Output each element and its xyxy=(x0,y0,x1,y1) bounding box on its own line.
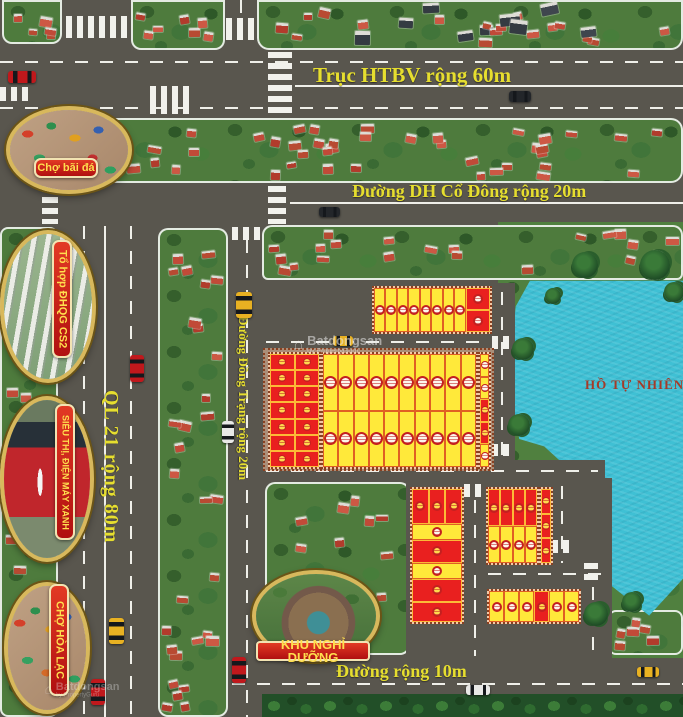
plot-strip xyxy=(412,563,462,579)
car-icon xyxy=(130,355,144,382)
plot-strip xyxy=(564,591,579,622)
plot-strip xyxy=(504,591,519,622)
palm-tree-icon xyxy=(584,602,608,626)
plot-cell xyxy=(480,422,489,445)
plot-stamp-icon xyxy=(386,305,396,315)
plot-stamp-icon xyxy=(303,390,311,398)
plot-cell xyxy=(429,489,446,524)
plot-stamp-icon xyxy=(278,423,286,431)
house-icon: ⌂ xyxy=(294,336,303,353)
plot-stamp-icon xyxy=(567,602,577,612)
market-photo xyxy=(10,110,128,190)
house-icon xyxy=(289,140,302,151)
plot-strip xyxy=(295,354,320,467)
crosswalk xyxy=(584,563,598,585)
watermark-sub: by PropertyGuru xyxy=(56,692,120,698)
house-icon xyxy=(269,245,280,253)
car-icon xyxy=(222,421,234,443)
house-icon xyxy=(357,20,368,30)
plot-stamp-icon xyxy=(339,432,352,445)
plot-cell xyxy=(412,579,462,602)
plot-stamp-icon xyxy=(455,305,465,315)
house-icon xyxy=(502,163,512,170)
house-icon xyxy=(210,572,220,581)
crosswalk xyxy=(492,444,512,456)
plot-stamp-icon xyxy=(278,390,286,398)
plot-cell xyxy=(408,288,419,332)
plot-cell xyxy=(270,386,295,402)
plot-strip xyxy=(534,591,549,622)
house-icon xyxy=(602,230,616,239)
plot-stamp-icon xyxy=(447,376,460,389)
house-icon xyxy=(323,163,334,173)
palm-tree-icon xyxy=(622,592,642,612)
house-icon xyxy=(355,31,371,45)
plot-stamp-icon xyxy=(449,501,459,511)
house-icon: ⌂ xyxy=(45,682,53,696)
plot-stamp-icon xyxy=(370,432,383,445)
house-icon xyxy=(39,16,53,28)
house-icon xyxy=(304,13,312,20)
plot-stamp-icon xyxy=(552,602,562,612)
house-icon xyxy=(153,26,164,32)
car-icon xyxy=(8,71,36,83)
plot-cell xyxy=(480,399,489,422)
watermark: ⌂ Batdongsan by PropertyGuru xyxy=(45,680,120,699)
plot-cell xyxy=(513,489,525,526)
lane-marking xyxy=(0,107,683,109)
plot-strip xyxy=(541,489,551,514)
plot-cell xyxy=(399,411,414,468)
plot-cell xyxy=(270,354,295,370)
plot-stamp-icon xyxy=(481,406,489,414)
plot-cell xyxy=(270,402,295,418)
plot-strip xyxy=(454,288,465,332)
house-icon xyxy=(174,442,184,452)
plot-stamp-icon xyxy=(339,376,352,389)
plot-strip xyxy=(374,288,385,332)
house-icon xyxy=(522,264,534,273)
car-icon xyxy=(232,657,246,683)
house-icon xyxy=(151,158,160,168)
plot-cell xyxy=(454,288,465,332)
plot-cell xyxy=(295,451,320,467)
plot-cell xyxy=(338,411,353,468)
plot-block xyxy=(372,286,492,334)
house-icon xyxy=(627,240,639,250)
house-icon xyxy=(144,30,154,39)
plot-cell xyxy=(500,489,512,526)
plot-strip xyxy=(466,288,490,332)
house-icon xyxy=(270,137,281,148)
plot-stamp-icon xyxy=(473,316,483,326)
plot-cell xyxy=(270,435,295,451)
house-icon xyxy=(201,250,214,258)
house-icon xyxy=(169,469,178,478)
house-icon xyxy=(276,254,287,265)
house-icon xyxy=(479,38,492,48)
house-icon xyxy=(383,251,394,261)
plot-stamp-icon xyxy=(462,376,475,389)
crosswalk xyxy=(492,336,512,349)
house-icon xyxy=(615,229,626,239)
plot-stamp-icon xyxy=(431,376,444,389)
plot-strip xyxy=(397,288,408,332)
plot-stamp-icon xyxy=(492,602,502,612)
lane-marking xyxy=(474,500,476,656)
house-icon xyxy=(172,254,182,264)
plot-stamp-icon xyxy=(444,305,454,315)
house-icon xyxy=(614,133,627,141)
crosswalk xyxy=(150,86,194,114)
plot-stamp-icon xyxy=(355,432,368,445)
plot-stamp-icon xyxy=(278,358,286,366)
house-icon xyxy=(433,132,444,142)
house-icon xyxy=(201,412,215,421)
plot-stamp-icon xyxy=(462,432,475,445)
plot-cell xyxy=(295,370,320,386)
plot-stamp-icon xyxy=(416,376,429,389)
campus-photo xyxy=(4,234,92,379)
house-icon xyxy=(555,21,566,30)
house-icon xyxy=(317,256,329,263)
plot-cell xyxy=(412,540,462,563)
house-icon xyxy=(540,162,552,171)
plot-cell xyxy=(541,489,551,514)
plot-stamp-icon xyxy=(385,432,398,445)
plot-cell xyxy=(295,402,320,418)
plot-strip xyxy=(385,288,396,332)
plot-stamp-icon xyxy=(421,305,431,315)
plot-stamp-icon xyxy=(432,607,442,617)
plot-strip xyxy=(412,540,462,563)
plot-stamp-icon xyxy=(542,547,550,555)
house-icon xyxy=(315,244,325,253)
plot-strip xyxy=(399,354,414,467)
palm-tree-icon xyxy=(640,250,670,280)
palm-tree-icon xyxy=(512,338,534,360)
plot-cell xyxy=(323,411,338,468)
plot-stamp-icon xyxy=(398,305,408,315)
house-icon xyxy=(490,167,503,174)
house-icon xyxy=(435,15,444,24)
plot-block xyxy=(410,487,464,624)
landmark-badge-sieu-thi: SIÊU THỊ, ĐIỆN MÁY XANH xyxy=(55,404,75,540)
plot-stamp-icon xyxy=(537,602,547,612)
house-icon xyxy=(360,132,371,141)
lane-marking xyxy=(501,292,503,458)
plot-cell xyxy=(270,451,295,467)
landmark-photo-dhqg xyxy=(0,230,96,383)
landmark-badge-dhqg: Tổ hợp ĐHQG CS2 xyxy=(52,240,72,358)
plot-strip xyxy=(338,354,353,467)
house-icon xyxy=(423,3,440,14)
house-icon xyxy=(172,165,181,175)
house-icon xyxy=(324,229,333,238)
plot-cell xyxy=(461,411,476,468)
plot-stamp-icon xyxy=(415,501,425,511)
house-icon xyxy=(275,22,287,33)
house-icon xyxy=(405,133,417,144)
road-label-dong-trang: Đường Đồng Trạng rộng 20m xyxy=(235,316,251,480)
lane-marking xyxy=(130,226,132,717)
plot-cell xyxy=(338,354,353,411)
crosswalk xyxy=(232,227,262,240)
landmark-badge-khu-nghi-duong: KHU NGHỈ DƯỠNG xyxy=(256,641,370,661)
house-icon xyxy=(177,596,188,603)
crosswalk xyxy=(268,186,286,224)
house-icon xyxy=(189,317,202,329)
house-icon xyxy=(330,239,340,247)
plot-strip xyxy=(415,354,430,467)
plot-block xyxy=(487,589,581,624)
house-icon xyxy=(298,149,308,157)
plot-cell xyxy=(445,354,460,411)
house-icon xyxy=(198,17,207,27)
house-icon xyxy=(376,593,385,601)
plot-cell xyxy=(384,411,399,468)
plot-stamp-icon xyxy=(501,503,511,513)
plot-strip xyxy=(412,489,462,524)
plot-stamp-icon xyxy=(489,503,499,513)
house-icon xyxy=(189,28,200,37)
plot-cell xyxy=(466,310,490,332)
house-icon xyxy=(206,636,219,646)
plot-stamp-icon xyxy=(278,374,286,382)
plot-stamp-icon xyxy=(542,497,550,505)
plot-stamp-icon xyxy=(278,406,286,414)
house-icon xyxy=(651,128,662,136)
plot-cell xyxy=(443,288,454,332)
car-icon xyxy=(236,292,252,318)
plot-cell xyxy=(504,591,519,622)
plot-cell xyxy=(374,288,385,332)
plot-cell xyxy=(270,370,295,386)
plot-stamp-icon xyxy=(507,602,517,612)
plot-stamp-icon xyxy=(385,376,398,389)
plot-cell xyxy=(466,288,490,310)
plot-stamp-icon xyxy=(481,429,489,437)
plot-stamp-icon xyxy=(324,432,337,445)
plot-stamp-icon xyxy=(401,432,414,445)
plot-stamp-icon xyxy=(481,452,489,460)
plot-strip xyxy=(270,354,295,467)
plot-cell xyxy=(369,411,384,468)
palm-tree-icon xyxy=(664,282,683,302)
plot-cell xyxy=(431,288,442,332)
plot-cell xyxy=(513,526,525,563)
watermark-brand: Batdongsan xyxy=(307,333,382,348)
plot-stamp-icon xyxy=(324,376,337,389)
plot-strip xyxy=(384,354,399,467)
palm-tree-icon xyxy=(508,414,530,436)
road-label-ql21: QL 21 rộng 80m xyxy=(99,390,122,543)
plot-stamp-icon xyxy=(514,540,524,550)
plot-cell xyxy=(270,419,295,435)
watermark: ⌂ Batdongsan by PropertyGuru xyxy=(294,333,382,355)
plot-stamp-icon xyxy=(542,522,550,530)
road-label-duong-10m: Đường rộng 10m xyxy=(336,661,467,682)
house-icon xyxy=(380,551,392,559)
plot-strip xyxy=(354,354,369,467)
crosswalk xyxy=(268,52,292,116)
plot-cell xyxy=(415,411,430,468)
plot-cell xyxy=(525,489,537,526)
house-icon xyxy=(338,503,350,514)
house-icon xyxy=(179,14,189,25)
plot-cell xyxy=(480,444,489,467)
plot-strip xyxy=(323,354,338,467)
lane-marking xyxy=(232,683,683,685)
car-icon xyxy=(637,667,659,677)
plot-stamp-icon xyxy=(473,294,483,304)
house-icon xyxy=(199,497,211,503)
plot-strip xyxy=(488,526,537,563)
plot-stamp-icon xyxy=(370,376,383,389)
watermark-sub: by PropertyGuru xyxy=(307,348,382,355)
house-icon xyxy=(509,19,528,35)
car-icon xyxy=(509,91,531,102)
car-icon xyxy=(109,618,124,644)
house-icon xyxy=(646,636,658,645)
plot-cell xyxy=(541,514,551,539)
plot-strip xyxy=(488,489,537,526)
house-icon xyxy=(376,515,387,522)
aerial-photo xyxy=(95,118,683,183)
plot-cell xyxy=(354,354,369,411)
tree-row xyxy=(262,694,683,717)
plot-cell xyxy=(412,524,462,540)
house-icon xyxy=(167,644,178,654)
plot-cell xyxy=(541,538,551,563)
house-icon xyxy=(203,31,213,41)
plot-stamp-icon xyxy=(278,439,286,447)
house-icon xyxy=(289,262,298,270)
plot-cell xyxy=(430,354,445,411)
plot-cell xyxy=(430,411,445,468)
house-icon xyxy=(270,170,279,180)
road-label-dh-co-dong: Đường DH Cổ Đông rộng 20m xyxy=(352,181,586,202)
plot-stamp-icon xyxy=(303,406,311,414)
plot-block xyxy=(268,352,321,469)
house-icon xyxy=(211,352,221,360)
plot-stamp-icon xyxy=(432,546,442,556)
house-icon xyxy=(202,394,210,402)
plot-strip xyxy=(480,354,489,467)
plot-strip xyxy=(489,591,504,622)
plot-stamp-icon xyxy=(355,376,368,389)
house-icon xyxy=(627,170,638,178)
plot-block xyxy=(321,352,478,469)
house-icon xyxy=(295,543,306,552)
plot-strip xyxy=(369,354,384,467)
lane-marking xyxy=(290,202,683,204)
plot-cell xyxy=(412,602,462,622)
house-icon xyxy=(162,626,171,635)
plot-cell xyxy=(295,386,320,402)
plot-strip xyxy=(408,288,419,332)
aerial-photo xyxy=(131,0,225,50)
plot-stamp-icon xyxy=(522,602,532,612)
house-icon xyxy=(614,641,625,651)
plot-strip xyxy=(541,538,551,563)
plot-strip xyxy=(412,524,462,540)
house-icon xyxy=(451,251,461,259)
house-icon xyxy=(666,237,679,245)
plot-cell xyxy=(525,526,537,563)
plot-cell xyxy=(480,377,489,400)
landmark-badge-cho-bai-da: Chợ bãi đá xyxy=(34,158,98,178)
plot-cell xyxy=(412,489,429,524)
landmark-photo-sieu-thi xyxy=(0,396,94,562)
plot-stamp-icon xyxy=(432,501,442,511)
plot-cell xyxy=(549,591,564,622)
house-icon xyxy=(189,148,198,156)
plot-stamp-icon xyxy=(278,455,286,463)
plot-cell xyxy=(534,591,549,622)
plot-strip xyxy=(430,354,445,467)
plot-stamp-icon xyxy=(526,540,536,550)
car-icon xyxy=(466,685,490,695)
house-icon xyxy=(351,164,361,172)
plot-stamp-icon xyxy=(303,358,311,366)
plot-cell xyxy=(412,563,462,579)
house-icon xyxy=(127,164,141,174)
watermark-brand: Batdongsan xyxy=(56,680,120,693)
supermarket-photo xyxy=(4,400,90,558)
plot-cell xyxy=(295,419,320,435)
plot-stamp-icon xyxy=(432,527,442,537)
plot-stamp-icon xyxy=(432,585,442,595)
house-icon xyxy=(200,279,210,288)
plot-cell xyxy=(354,411,369,468)
plot-stamp-icon xyxy=(432,305,442,315)
plot-cell xyxy=(415,354,430,411)
house-icon xyxy=(364,515,373,525)
plot-cell xyxy=(420,288,431,332)
plot-cell xyxy=(384,354,399,411)
plot-cell xyxy=(488,526,500,563)
plot-cell xyxy=(295,435,320,451)
plot-stamp-icon xyxy=(375,305,385,315)
plot-cell xyxy=(488,489,500,526)
house-icon xyxy=(477,171,486,179)
house-icon xyxy=(14,14,23,22)
plot-cell xyxy=(480,354,489,377)
plot-cell xyxy=(445,489,462,524)
plot-stamp-icon xyxy=(303,439,311,447)
crosswalk xyxy=(66,16,128,38)
plot-stamp-icon xyxy=(303,423,311,431)
lake-label: HỒ TỰ NHIÊN xyxy=(585,377,683,393)
plot-stamp-icon xyxy=(481,361,489,369)
plot-cell xyxy=(489,591,504,622)
crosswalk xyxy=(226,18,254,40)
plot-stamp-icon xyxy=(432,566,442,576)
house-icon xyxy=(399,18,413,28)
palm-tree-icon xyxy=(572,252,598,278)
plot-cell xyxy=(385,288,396,332)
plot-cell xyxy=(323,354,338,411)
plot-block xyxy=(478,352,491,469)
plot-strip xyxy=(549,591,564,622)
plot-strip xyxy=(420,288,431,332)
plot-strip xyxy=(412,579,462,602)
house-icon xyxy=(168,267,178,275)
palm-tree-icon xyxy=(545,288,561,304)
road-label-truc-htbv: Trục HTBV rộng 60m xyxy=(313,63,511,88)
crosswalk xyxy=(552,540,574,553)
